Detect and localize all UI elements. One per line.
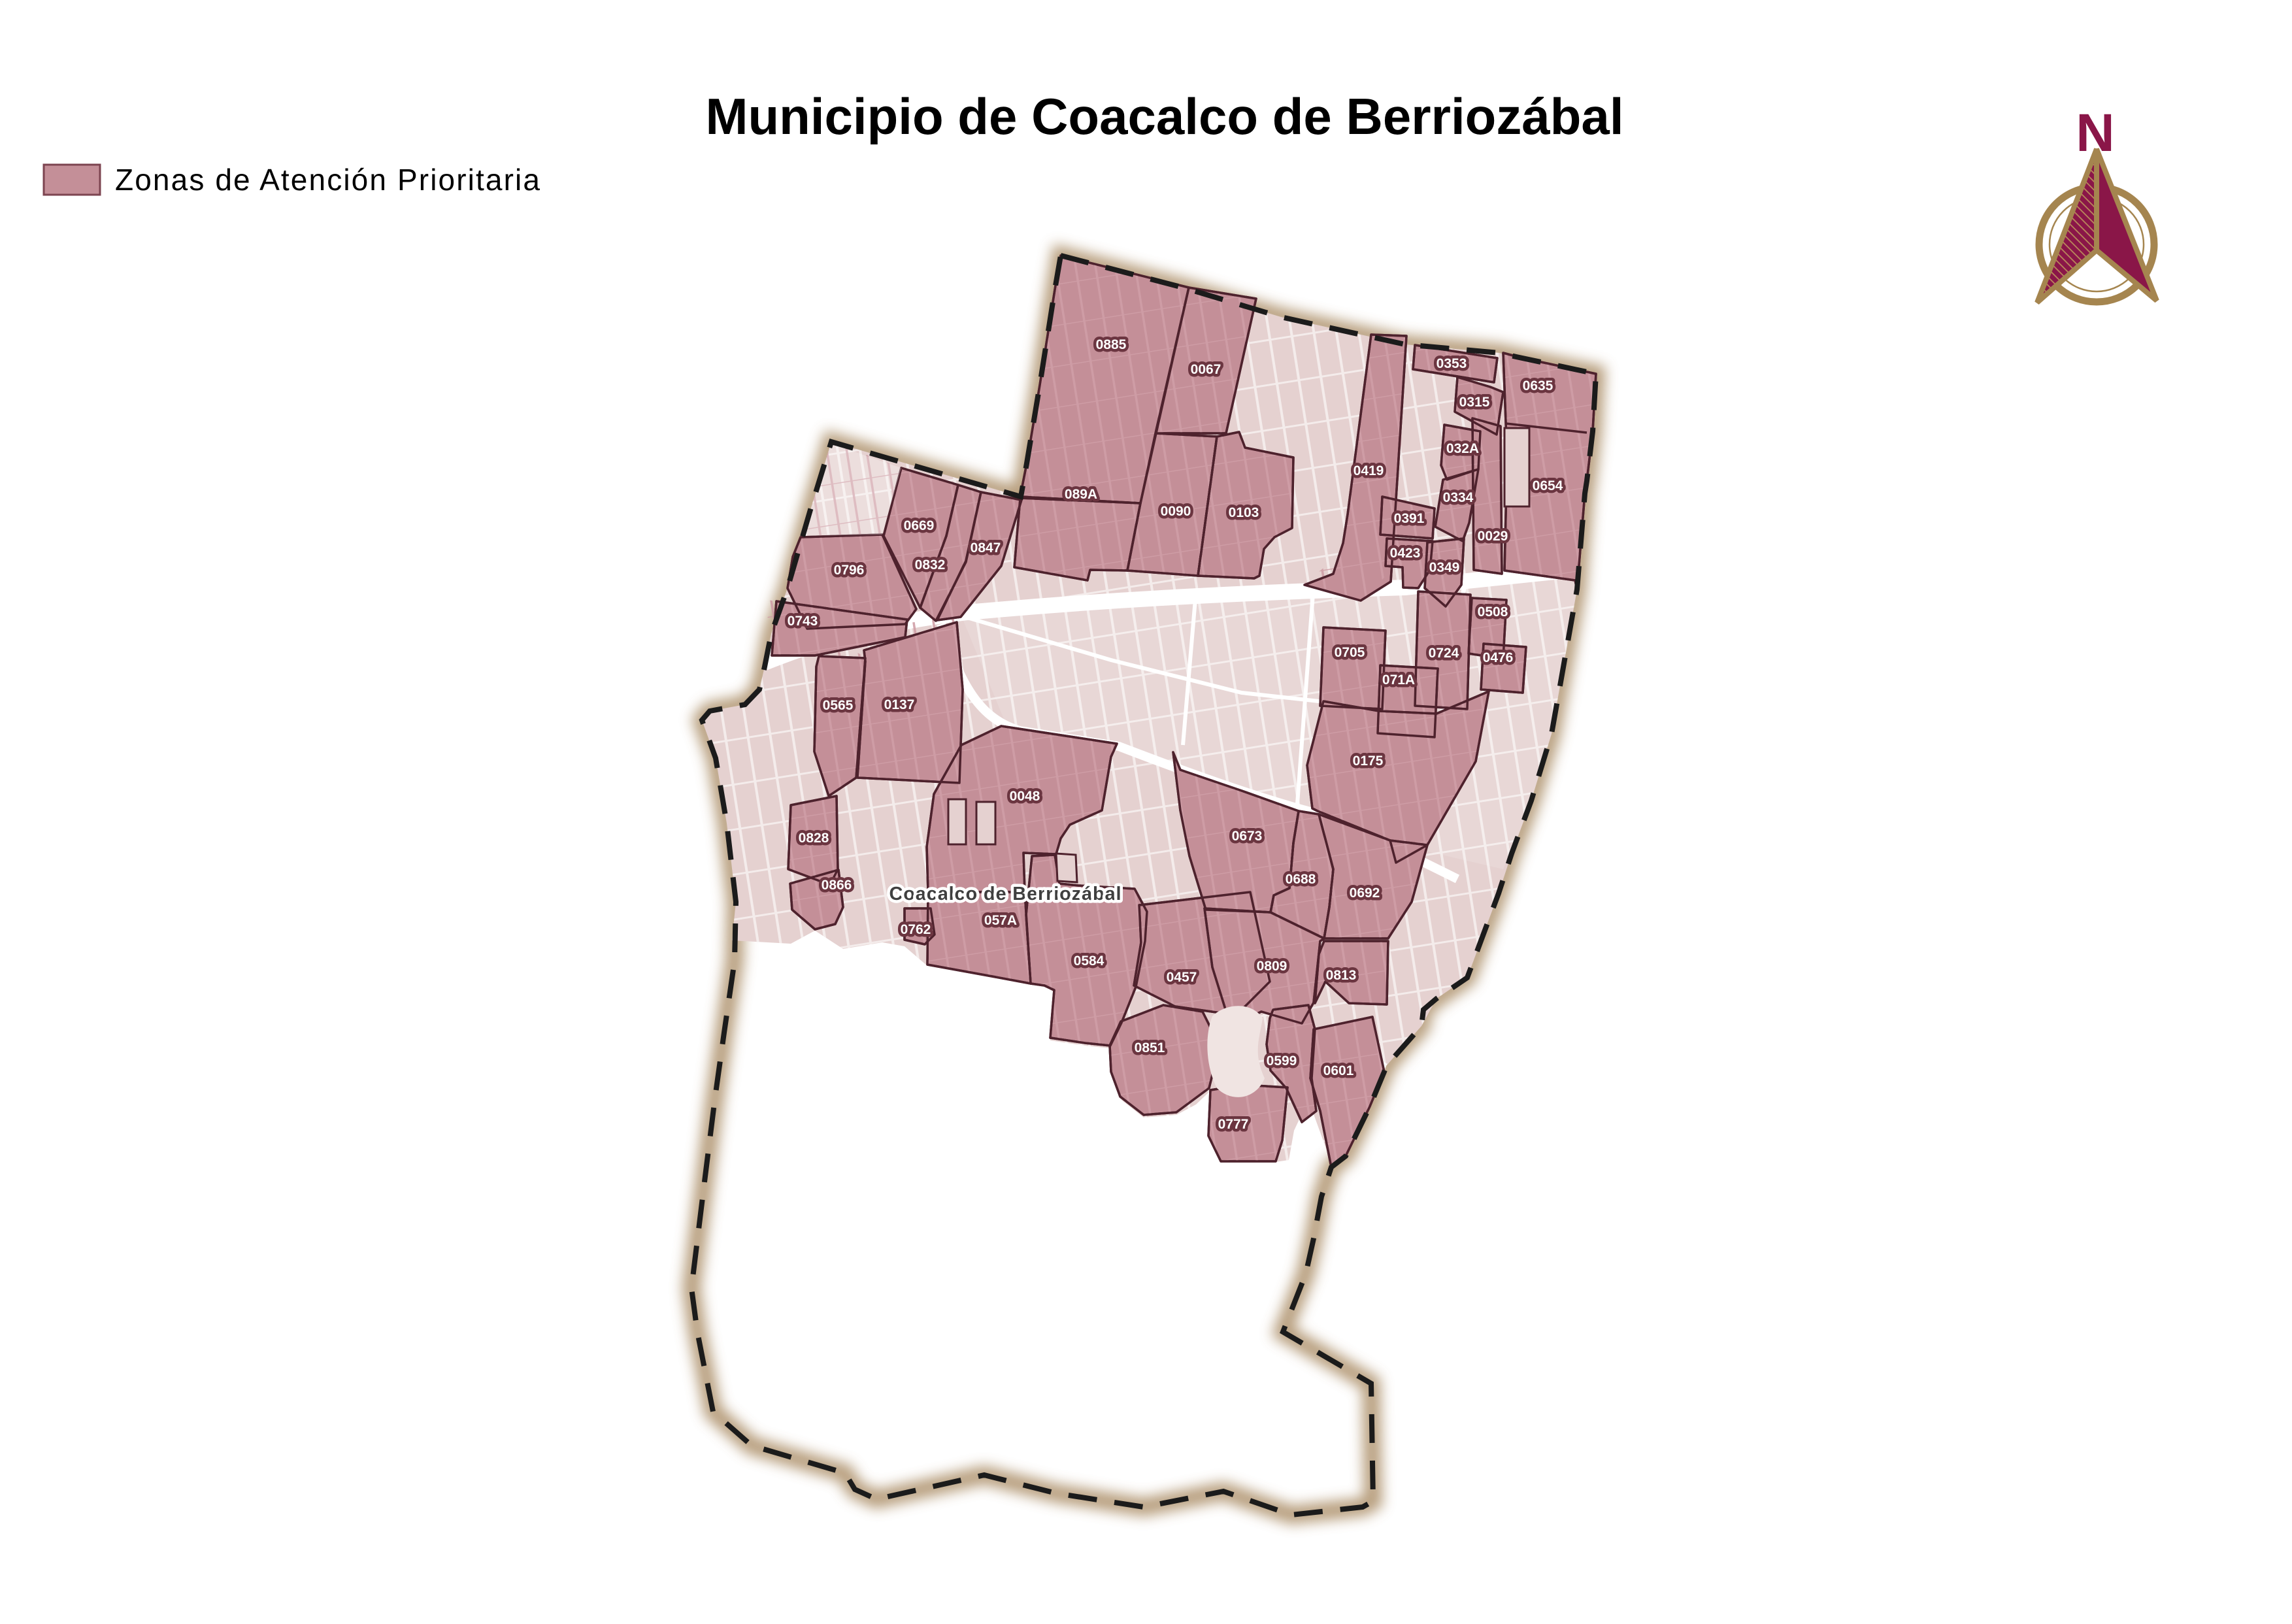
svg-text:0777: 0777	[1218, 1117, 1249, 1132]
svg-text:0813: 0813	[1326, 968, 1357, 983]
svg-text:0832: 0832	[915, 557, 946, 572]
svg-text:071A: 071A	[1382, 672, 1415, 688]
svg-text:0688: 0688	[1286, 872, 1316, 887]
svg-text:Municipio de Coacalco de Berri: Municipio de Coacalco de Berriozábal	[706, 88, 1624, 145]
svg-text:0847: 0847	[971, 540, 1001, 555]
svg-text:0885: 0885	[1096, 337, 1127, 352]
svg-text:0048: 0048	[1010, 789, 1040, 804]
svg-text:0565: 0565	[823, 698, 854, 713]
svg-text:0599: 0599	[1267, 1053, 1297, 1069]
svg-text:0724: 0724	[1429, 646, 1459, 661]
svg-text:0809: 0809	[1257, 959, 1287, 974]
svg-text:089A: 089A	[1065, 487, 1097, 502]
svg-text:0457: 0457	[1167, 970, 1197, 985]
svg-text:0654: 0654	[1533, 478, 1563, 493]
svg-text:0029: 0029	[1478, 529, 1508, 544]
svg-text:0103: 0103	[1229, 505, 1259, 520]
svg-text:0692: 0692	[1350, 886, 1380, 901]
svg-text:N: N	[2076, 103, 2114, 163]
svg-text:0828: 0828	[799, 831, 829, 846]
svg-text:0315: 0315	[1459, 395, 1490, 410]
svg-text:0419: 0419	[1354, 463, 1384, 478]
svg-text:0796: 0796	[834, 563, 865, 578]
svg-text:0866: 0866	[822, 878, 852, 893]
svg-text:0851: 0851	[1135, 1040, 1165, 1055]
svg-text:0743: 0743	[788, 614, 818, 629]
svg-text:0353: 0353	[1437, 356, 1467, 371]
svg-text:0584: 0584	[1074, 953, 1104, 969]
svg-text:0423: 0423	[1390, 546, 1421, 561]
svg-text:0334: 0334	[1443, 490, 1474, 505]
svg-text:0067: 0067	[1191, 362, 1221, 377]
svg-text:0669: 0669	[904, 518, 935, 533]
svg-text:0349: 0349	[1429, 560, 1460, 575]
svg-text:Zonas de Atención Prioritaria: Zonas de Atención Prioritaria	[115, 163, 540, 197]
svg-text:0601: 0601	[1323, 1063, 1354, 1078]
svg-text:0391: 0391	[1394, 511, 1425, 526]
svg-text:0175: 0175	[1353, 754, 1384, 769]
svg-text:0635: 0635	[1523, 378, 1553, 393]
svg-text:057A: 057A	[984, 913, 1017, 928]
svg-text:032A: 032A	[1446, 441, 1479, 456]
svg-text:0508: 0508	[1478, 605, 1508, 620]
svg-text:0705: 0705	[1335, 645, 1365, 660]
svg-text:0476: 0476	[1483, 650, 1514, 665]
svg-text:Coacalco de Berriozábal: Coacalco de Berriozábal	[889, 884, 1121, 904]
svg-text:0090: 0090	[1161, 504, 1191, 519]
svg-text:0762: 0762	[901, 922, 931, 937]
svg-text:0673: 0673	[1232, 829, 1263, 844]
svg-text:0137: 0137	[884, 697, 915, 712]
